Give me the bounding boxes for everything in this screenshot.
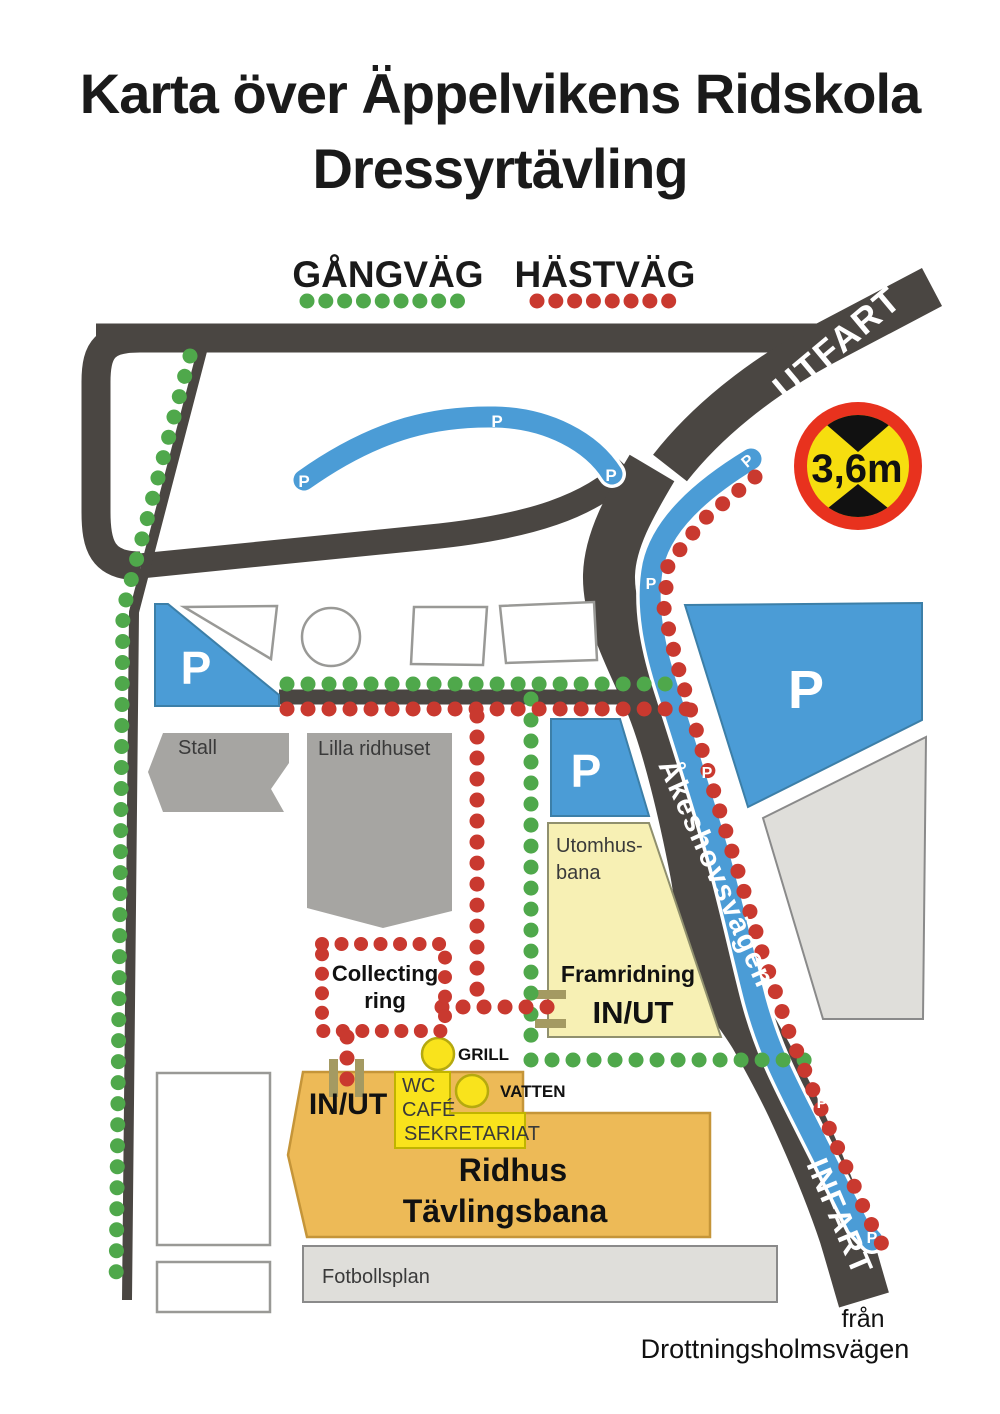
grill-spot [422, 1038, 454, 1070]
map-canvas: 3,6m Karta över Äppelvikens Ridskola Dre… [0, 0, 1000, 1414]
collecting-ring-label-line1: Collecting [332, 961, 438, 986]
ridhus-label-line2: Tävlingsbana [403, 1193, 608, 1229]
grill-label: GRILL [458, 1045, 509, 1064]
parking-p-strip1-a: P [298, 472, 309, 491]
framridning-label: Framridning [561, 961, 695, 987]
stall-label: Stall [178, 737, 217, 759]
height-limit-sign: 3,6m [794, 400, 922, 532]
page-title-line1: Karta över Äppelvikens Ridskola [80, 62, 922, 125]
lilla-ridhuset-label: Lilla ridhuset [318, 738, 431, 760]
parking-p-strip2-e: P [867, 1230, 878, 1247]
parking-p-strip2-c: P [702, 765, 713, 782]
stall-building [148, 733, 289, 812]
paddock-circle [302, 608, 360, 666]
cafe-label: CAFÉ [402, 1098, 455, 1121]
parking-p-strip2-b: P [646, 576, 657, 593]
from-label-line2: Drottningsholmsvägen [641, 1334, 910, 1364]
white-rect-1 [157, 1073, 270, 1245]
parking-p-square: P [571, 745, 602, 797]
parking-p-strip1-c: P [605, 466, 616, 485]
parking-p-strip2-d: P [817, 1095, 828, 1112]
legend-horse-label: HÄSTVÄG [515, 254, 696, 295]
framridning-gate-label: IN/UT [593, 995, 674, 1030]
vatten-spot [456, 1075, 488, 1107]
lilla-ridhuset-building [307, 733, 452, 928]
parking-p-triangle: P [181, 642, 212, 694]
fotbollsplan-label: Fotbollsplan [322, 1266, 430, 1288]
framridning-gate-bar-bottom [535, 1019, 566, 1028]
from-label-line1: från [841, 1305, 884, 1333]
legend-walk-label: GÅNGVÄG [292, 254, 483, 295]
parking-p-large: P [788, 660, 824, 720]
map-page: 3,6m Karta över Äppelvikens Ridskola Dre… [0, 0, 1000, 1414]
vatten-label: VATTEN [500, 1082, 565, 1101]
sekretariat-label: SEKRETARIAT [404, 1123, 540, 1145]
ridhus-label-line1: Ridhus [459, 1152, 567, 1188]
utomhusbana-label-line1: Utomhus- [556, 835, 643, 857]
sign-limit-text: 3,6m [811, 447, 902, 491]
paddock-quad-1 [411, 607, 487, 665]
framridning-gate-bar-top [535, 990, 566, 999]
road-loop-left [96, 338, 140, 566]
road-loop-diagonal [140, 468, 628, 566]
parking-p-strip1-b: P [491, 412, 502, 431]
white-rect-2 [157, 1262, 270, 1312]
wc-label: WC [402, 1075, 435, 1097]
buildings [148, 733, 452, 928]
utomhusbana-label-line2: bana [556, 862, 601, 884]
collecting-ring-label-line2: ring [364, 988, 406, 1013]
paddock-quad-2 [500, 602, 597, 663]
page-title-line2: Dressyrtävling [312, 137, 687, 200]
ridhus-gate-label: IN/UT [309, 1088, 387, 1121]
